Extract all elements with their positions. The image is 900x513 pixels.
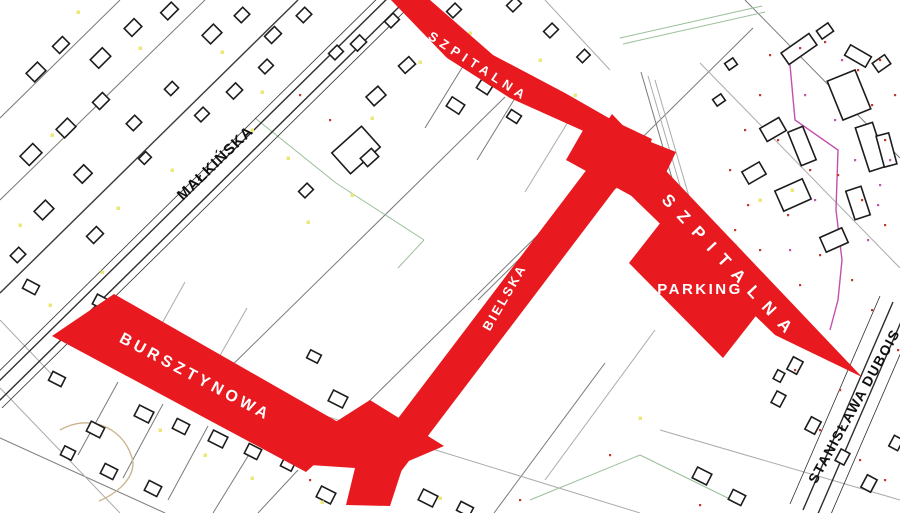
cadastral-map: SZPITALNA SZPITALNA BIELSKA BURSZTYNOWA … (0, 0, 900, 513)
parcel-lines-layer (0, 0, 900, 513)
background-roads-layer (0, 0, 900, 513)
buildings-layer (10, 0, 900, 513)
map-viewport: SZPITALNA SZPITALNA BIELSKA BURSZTYNOWA … (0, 0, 900, 513)
street-label-szpitalna-upper: SZPITALNA (426, 28, 532, 104)
survey-dots-layer (19, 11, 900, 507)
parking-label: PARKING (657, 281, 743, 298)
street-label-malkinska: MAŁKIŃSKA (174, 123, 257, 204)
